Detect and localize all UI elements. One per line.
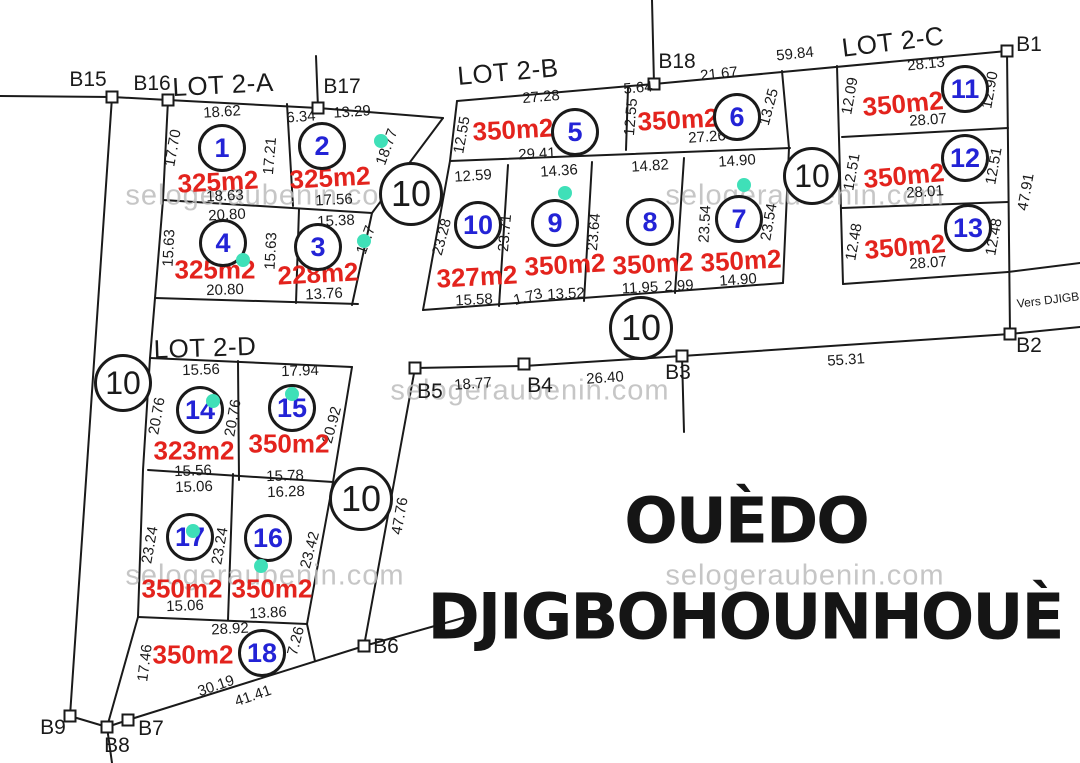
status-dot-group xyxy=(186,134,751,573)
status-dot xyxy=(236,253,250,267)
cadastral-map: selogeraubenin.comselogeraubenin.comselo… xyxy=(0,0,1080,763)
status-dot xyxy=(206,394,220,408)
status-dot xyxy=(285,387,299,401)
plot-status-dots xyxy=(0,0,1080,763)
status-dot xyxy=(558,186,572,200)
status-dot xyxy=(737,178,751,192)
status-dot xyxy=(374,134,388,148)
status-dot xyxy=(357,234,371,248)
status-dot xyxy=(186,524,200,538)
status-dot xyxy=(254,559,268,573)
